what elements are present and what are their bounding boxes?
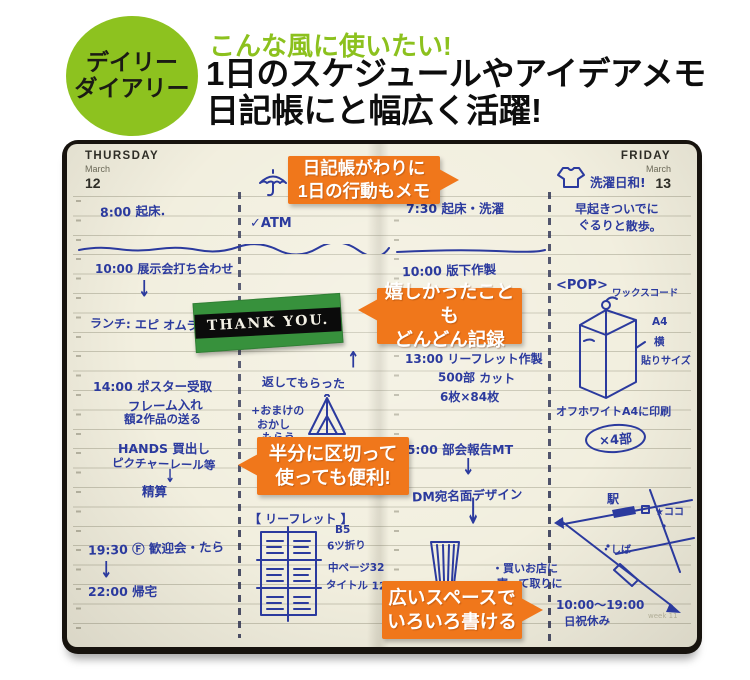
callout-tail [238,454,258,476]
headline-line1: 1日のスケジュールやアイデアメモ [206,56,706,93]
parcel-doodle-icon [306,394,348,440]
callout-line: 半分に区切って [257,442,409,466]
umbrella-doodle-icon [258,168,288,198]
badge-line2: ダイアリー [75,76,190,102]
hand-drawn-divider-left [238,192,241,638]
month-label: March [85,164,159,174]
handwritten-note: 日祝休み [564,612,610,629]
callout-line: 使っても便利! [257,466,409,490]
down-arrow-doodle: ↓ [462,454,475,481]
handwritten-note: 13:00 リーフレット作製 [405,350,543,367]
handwritten-note: 8:00 起床. [100,200,166,221]
daily-diary-badge: デイリー ダイアリー [66,16,198,136]
badge-line1: デイリー [86,50,178,76]
callout-tail [439,169,459,191]
margin-ticks-right [394,200,399,635]
day-label: FRIDAY [621,150,671,162]
handwritten-note: 返してもらった [262,373,345,392]
headline: 1日のスケジュールやアイデアメモ 日記帳にと幅広く活躍! [206,56,706,130]
callout-line: いろいろ書ける [382,610,522,634]
handwritten-note: 10:00〜19:00 [556,596,644,613]
handwritten-note: 10:00 展示会打ち合わせ [95,260,233,277]
handwritten-note: ぐるりと散歩。 [578,216,662,235]
wavy-ink-line [78,244,390,254]
handwritten-note: 額2作品の送る [124,411,201,427]
pop-stand-doodle [570,293,648,403]
handwritten-note: HANDS 買出し [118,438,210,457]
thank-you-label: THANK YOU. [194,307,341,339]
callout-line: どんどん記録 [377,328,522,352]
handwritten-note: 洗濯日和! [590,172,646,191]
page-footer-text: week 11 [648,612,678,620]
handwritten-note: 15:00 部会報告MT [398,439,513,458]
headline-line2: 日記帳にと幅広く活躍! [206,93,706,130]
handwritten-note: <POP> [556,278,608,293]
callout-line: 広いスペースで [382,586,522,610]
callout-line: 1日の行動もメモ [288,180,440,203]
handwritten-note: 貼りサイズ [641,352,691,367]
callout-line: 日記帳がわりに [288,157,440,180]
down-arrow-doodle: ↓ [100,557,113,584]
handwritten-note: ✓ATM [250,216,292,231]
handwritten-note: 早起きついでに [575,200,659,217]
diary-notebook-photo: THURSDAY March 12 FRIDAY March 13 [62,140,702,654]
callout-wide-space: 広いスペースで いろいろ書ける [382,581,522,639]
handwritten-note: 精算 [142,481,167,500]
thank-you-sticker: THANK YOU. [192,293,343,353]
callout-split-half: 半分に区切って 使っても便利! [257,437,409,495]
handwritten-note: オフホワイトA4に印刷 [556,403,671,419]
handwritten-note: A4 [652,316,667,328]
map-label: 駅 [607,490,619,507]
up-arrow-doodle: ↑ [347,347,360,374]
margin-ticks-left [76,200,81,635]
callout-diary-memo: 日記帳がわりに 1日の行動もメモ [288,156,440,204]
handwritten-note: 500部 カット [438,368,516,387]
handwritten-note: 横 [654,334,665,349]
handwritten-note: 22:00 帰宅 [88,581,157,600]
handwritten-note: 6ツ折り [327,537,366,553]
callout-tail [358,299,378,321]
tshirt-doodle-icon [556,166,586,190]
handwritten-note: 14:00 ポスター受取 [93,376,212,395]
promo-image: デイリー ダイアリー こんな風に使いたい! 1日のスケジュールやアイデアメモ 日… [0,0,750,680]
handwritten-note: 19:30 Ⓕ 歓迎会・たら [88,536,224,559]
ink-line [396,247,546,255]
left-page-header: THURSDAY March 12 [85,150,159,191]
callout-record-happy: 嬉しかったことも どんどん記録 [377,288,522,344]
callout-tail [521,598,543,622]
handwritten-note: B5 [335,524,350,536]
handwritten-note: 6枚×84枚 [440,388,499,405]
map-label: ・しば [601,541,631,556]
handwritten-note: ピクチャーレール等 [112,455,216,474]
diary-spread: THURSDAY March 12 FRIDAY March 13 [67,144,697,647]
handwritten-note: ・買いお店に [492,560,558,576]
leaflet-grid-doodle [256,526,322,622]
handwritten-note: 中ページ32 [328,560,384,575]
handwritten-note: ワックスコード [612,285,678,299]
map-label: ★ココ [655,503,684,518]
handwritten-note: 10:00 版下作製 [402,259,497,280]
down-arrow-doodle: ↓ [466,492,480,534]
down-arrow-doodle: ↓ [138,276,151,303]
date-number: 12 [85,175,159,191]
day-label: THURSDAY [85,150,159,162]
callout-line: 嬉しかったことも [377,280,522,328]
